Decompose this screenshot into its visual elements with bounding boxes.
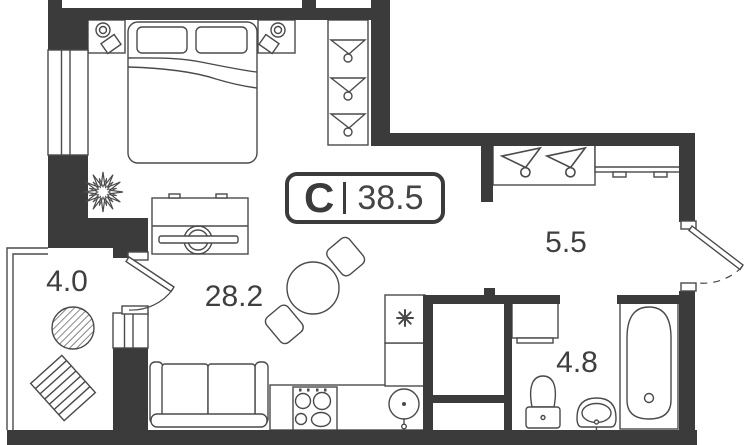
- window-balcony: [113, 313, 148, 348]
- pillow: [196, 27, 247, 53]
- dining-table: [287, 262, 339, 314]
- pillow: [137, 27, 187, 53]
- nightstand-left: [88, 20, 125, 54]
- toilet: [526, 376, 560, 428]
- sofa: [150, 362, 268, 427]
- balcony-chair: [31, 355, 96, 420]
- badge-separator: [343, 182, 346, 214]
- unit-badge: С 38.5: [285, 172, 445, 224]
- balcony-door: [122, 252, 174, 314]
- wardrobe: [328, 20, 368, 145]
- plant-icon: [83, 172, 123, 212]
- floor-plan: 4.0 28.2 5.5 4.8 С 38.5: [0, 0, 746, 445]
- tv-stand: [152, 194, 248, 254]
- unit-type-letter: С: [304, 177, 334, 219]
- unit-total-area: 38.5: [357, 181, 423, 215]
- entrance-door: [681, 221, 743, 291]
- snowflake-icon: [397, 310, 413, 326]
- living-room-area-label: 28.2: [205, 280, 263, 313]
- stove: [293, 387, 337, 430]
- double-bed: [128, 22, 257, 163]
- washbasin: [577, 398, 616, 430]
- balcony-area-label: 4.0: [46, 265, 88, 298]
- duct-shaft: [423, 288, 512, 430]
- washing-machine: [512, 299, 558, 343]
- nightstand-right: [258, 20, 295, 54]
- bathtub: [620, 299, 678, 429]
- hallway-area-label: 5.5: [545, 226, 587, 259]
- balcony-glazing: [7, 248, 48, 430]
- shoe-cabinet: [595, 144, 680, 177]
- coat-rack: [493, 144, 595, 185]
- balcony-table: [52, 307, 94, 349]
- bathroom-area-label: 4.8: [556, 346, 598, 379]
- window-west: [48, 50, 88, 155]
